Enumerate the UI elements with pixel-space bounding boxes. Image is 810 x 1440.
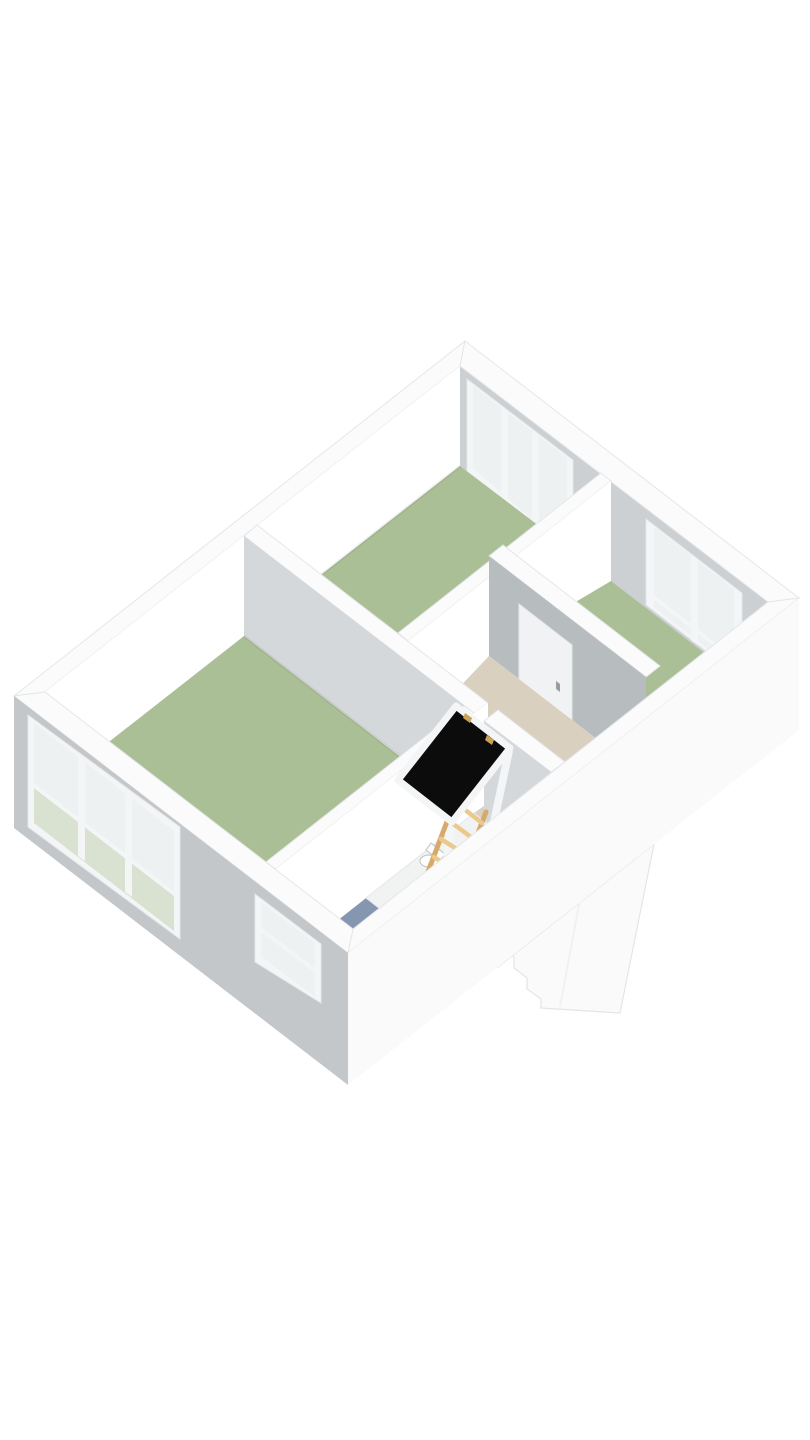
window-mullion <box>532 431 539 531</box>
window-mullion <box>501 407 508 507</box>
window-mullion <box>78 756 85 861</box>
window-mullion <box>125 792 132 897</box>
page: { "scene": { "kind": "isometric-3d-floor… <box>0 0 810 1440</box>
floorplan-3d-render <box>0 0 810 1440</box>
